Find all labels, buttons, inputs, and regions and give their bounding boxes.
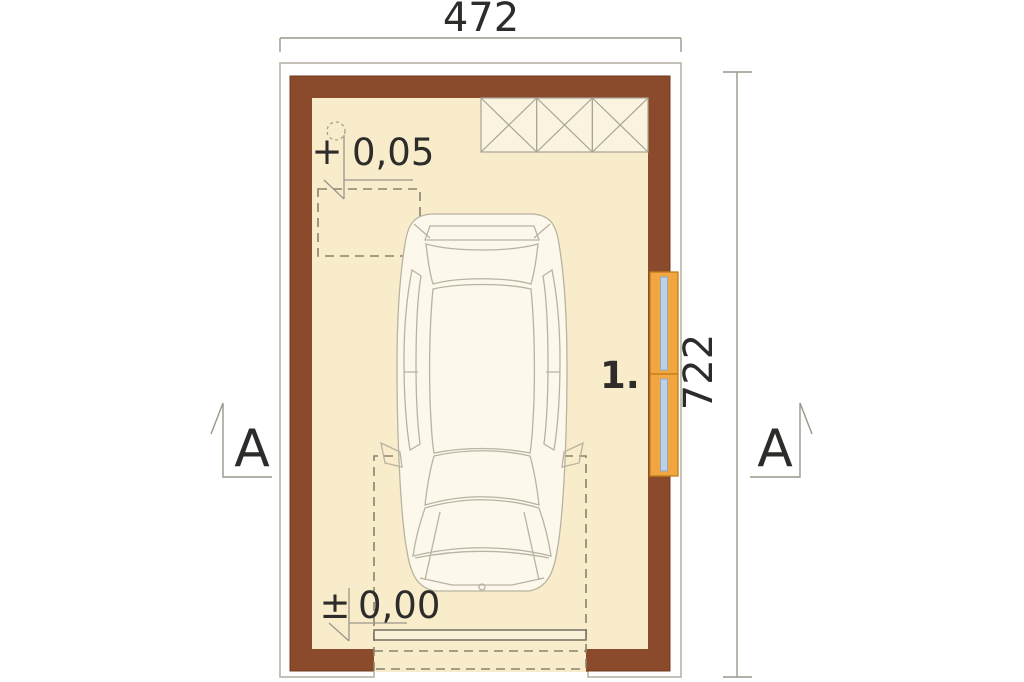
car-top-view: [381, 214, 583, 591]
floor-plan-canvas: 472 722 + 0,05 ± 0,00 1. A A: [0, 0, 1024, 682]
section-marker-left: A: [211, 403, 272, 479]
level-lower-value: 0,00: [358, 584, 440, 627]
car-body: [397, 214, 567, 591]
dimension-right-line: [723, 72, 752, 677]
window-right: [650, 272, 678, 476]
dimension-top-label: 472: [443, 0, 519, 41]
garage-floor-plan: 472 722 + 0,05 ± 0,00 1. A A: [0, 0, 1024, 682]
room-number: 1.: [600, 354, 640, 397]
level-upper-value: 0,05: [352, 131, 434, 174]
section-label-left: A: [234, 419, 270, 479]
section-label-right: A: [757, 419, 793, 479]
garage-door-leaf: [374, 630, 586, 640]
section-marker-right: A: [750, 403, 812, 479]
window-glass-upper: [661, 277, 668, 370]
dimension-top: 472: [280, 0, 681, 52]
level-upper-sign: +: [311, 130, 342, 173]
level-lower-sign: ±: [319, 584, 350, 627]
dimension-right-label: 722: [676, 334, 722, 410]
window-glass-lower: [661, 379, 668, 471]
storage-hatch: [481, 98, 648, 152]
dimension-right: 722: [676, 72, 752, 677]
